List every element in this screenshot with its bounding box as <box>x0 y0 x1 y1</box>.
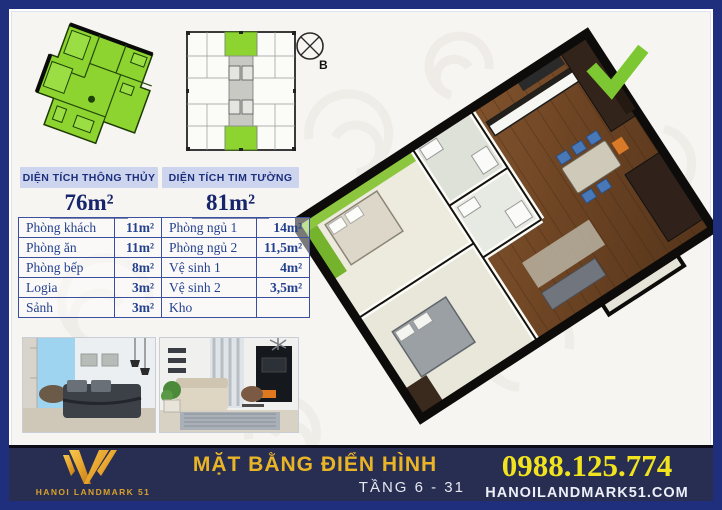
brand-logo-icon <box>55 449 117 486</box>
apartment-3d-plan <box>295 10 713 442</box>
room-name: Vệ sinh 1 <box>162 258 257 278</box>
area-wall-block: DIỆN TÍCH TIM TƯỜNG 81m² <box>162 167 299 219</box>
room-name: Phòng ngủ 1 <box>162 218 257 238</box>
room-name: Phòng bếp <box>19 258 115 278</box>
room-area: 11,5m² <box>257 238 310 258</box>
area-clear-label: DIỆN TÍCH THÔNG THỦY <box>20 167 158 188</box>
room-name: Phòng ăn <box>19 238 115 258</box>
room-area: 3,5m² <box>257 278 310 298</box>
table-row: Phòng bếp 8m² Vệ sinh 1 4m² <box>19 258 310 278</box>
room-name: Kho <box>162 298 257 318</box>
plan-title: MẶT BẰNG ĐIỂN HÌNH <box>159 453 471 477</box>
flyer-page: B <box>0 0 722 510</box>
area-wall-value: 81m² <box>162 190 299 219</box>
building-key-plan <box>181 22 303 162</box>
bedroom-photo <box>22 337 156 433</box>
room-area: 14m² <box>257 218 310 238</box>
room-name: Sảnh <box>19 298 115 318</box>
room-name: Logia <box>19 278 115 298</box>
brand-logo-text: HANOI LANDMARK 51 <box>17 487 169 497</box>
floor-range: TẦNG 6 - 31 <box>159 479 465 496</box>
room-area-table: Phòng khách 11m² Phòng ngủ 1 14m² Phòng … <box>18 217 310 318</box>
room-area: 11m² <box>115 238 162 258</box>
living-room-photo <box>159 337 299 433</box>
room-name: Phòng ngủ 2 <box>162 238 257 258</box>
table-row: Sảnh 3m² Kho <box>19 298 310 318</box>
table-row: Logia 3m² Vệ sinh 2 3,5m² <box>19 278 310 298</box>
room-area: 8m² <box>115 258 162 278</box>
room-area <box>257 298 310 318</box>
footer-bar: HANOI LANDMARK 51 MẶT BẰNG ĐIỂN HÌNH TẦN… <box>9 445 713 501</box>
area-clear-value: 76m² <box>20 190 158 219</box>
room-area: 3m² <box>115 298 162 318</box>
room-area: 4m² <box>257 258 310 278</box>
room-area: 11m² <box>115 218 162 238</box>
area-clear-block: DIỆN TÍCH THÔNG THỦY 76m² <box>20 167 158 219</box>
contact-website: HANOILANDMARK51.COM <box>464 485 710 501</box>
contact-phone: 0988.125.774 <box>464 448 710 484</box>
area-wall-label: DIỆN TÍCH TIM TƯỜNG <box>162 167 299 188</box>
room-area: 3m² <box>115 278 162 298</box>
table-row: Phòng ăn 11m² Phòng ngủ 2 11,5m² <box>19 238 310 258</box>
room-name: Vệ sinh 2 <box>162 278 257 298</box>
unit-plan-2d <box>20 12 172 162</box>
room-name: Phòng khách <box>19 218 115 238</box>
table-row: Phòng khách 11m² Phòng ngủ 1 14m² <box>19 218 310 238</box>
